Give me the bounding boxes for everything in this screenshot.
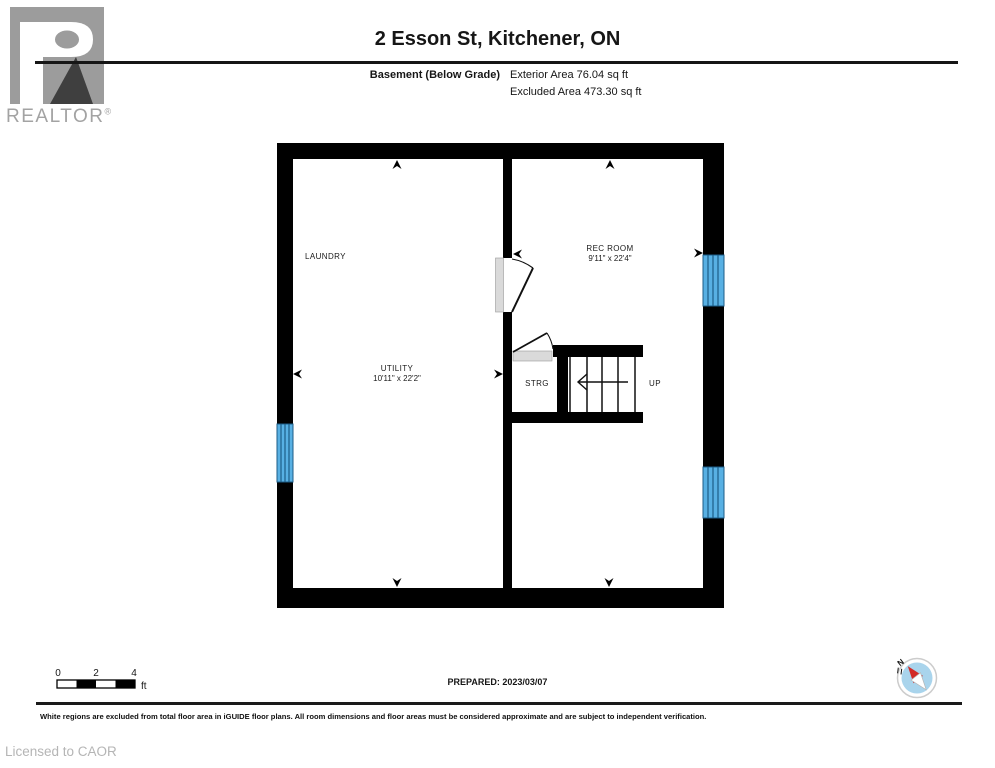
door-storage bbox=[513, 333, 553, 361]
prepared-date: PREPARED: 2023/03/07 bbox=[0, 677, 995, 687]
arrow-down-icon bbox=[393, 578, 402, 587]
footer-divider bbox=[36, 702, 962, 705]
realtor-wordmark-text: REALTOR bbox=[6, 106, 105, 127]
exterior-walls bbox=[277, 143, 724, 608]
door-panel bbox=[513, 351, 552, 361]
license-text: Licensed to CAOR bbox=[5, 744, 117, 759]
arrow-right-icon bbox=[494, 370, 503, 379]
room-label-storage: STRG bbox=[525, 379, 549, 388]
arrow-left-icon bbox=[513, 250, 522, 259]
arrow-left-icon bbox=[293, 370, 302, 379]
floorplan-drawing: LAUNDRY UTILITY 10'11" x 22'2" REC ROOM … bbox=[0, 0, 995, 768]
window-right-lower bbox=[703, 467, 724, 518]
arrow-right-icon bbox=[694, 249, 703, 258]
header-divider bbox=[35, 61, 958, 64]
door-swing-arc bbox=[512, 259, 533, 268]
door-swing-arc bbox=[547, 333, 553, 349]
door-leaf bbox=[513, 333, 547, 352]
door-rec-room bbox=[496, 258, 534, 312]
dimension-arrows bbox=[293, 160, 703, 587]
floorplan-page: REALTOR® 2 Esson St, Kitchener, ON Basem… bbox=[0, 0, 995, 768]
room-label-utility: UTILITY bbox=[381, 364, 414, 373]
room-dims-rec-room: 9'11" x 22'4" bbox=[588, 254, 631, 263]
window-left bbox=[277, 424, 293, 482]
room-label-rec-room: REC ROOM bbox=[586, 244, 633, 253]
arrow-up-icon bbox=[393, 160, 402, 169]
door-leaf bbox=[512, 268, 533, 312]
interior-wall bbox=[503, 159, 512, 588]
door-panel bbox=[496, 258, 504, 312]
stairs-up-label: UP bbox=[649, 379, 661, 388]
registered-symbol: ® bbox=[105, 107, 113, 117]
arrow-up-icon bbox=[606, 160, 615, 169]
window-right-upper bbox=[703, 255, 724, 306]
stairs bbox=[570, 357, 635, 412]
disclaimer-text: White regions are excluded from total fl… bbox=[40, 712, 960, 721]
room-dims-utility: 10'11" x 22'2" bbox=[373, 374, 421, 383]
stair-treads bbox=[570, 357, 635, 412]
arrow-down-icon bbox=[605, 578, 614, 587]
realtor-wordmark: REALTOR® bbox=[6, 106, 113, 128]
room-label-laundry: LAUNDRY bbox=[305, 252, 346, 261]
realtor-logo-icon bbox=[10, 7, 104, 104]
